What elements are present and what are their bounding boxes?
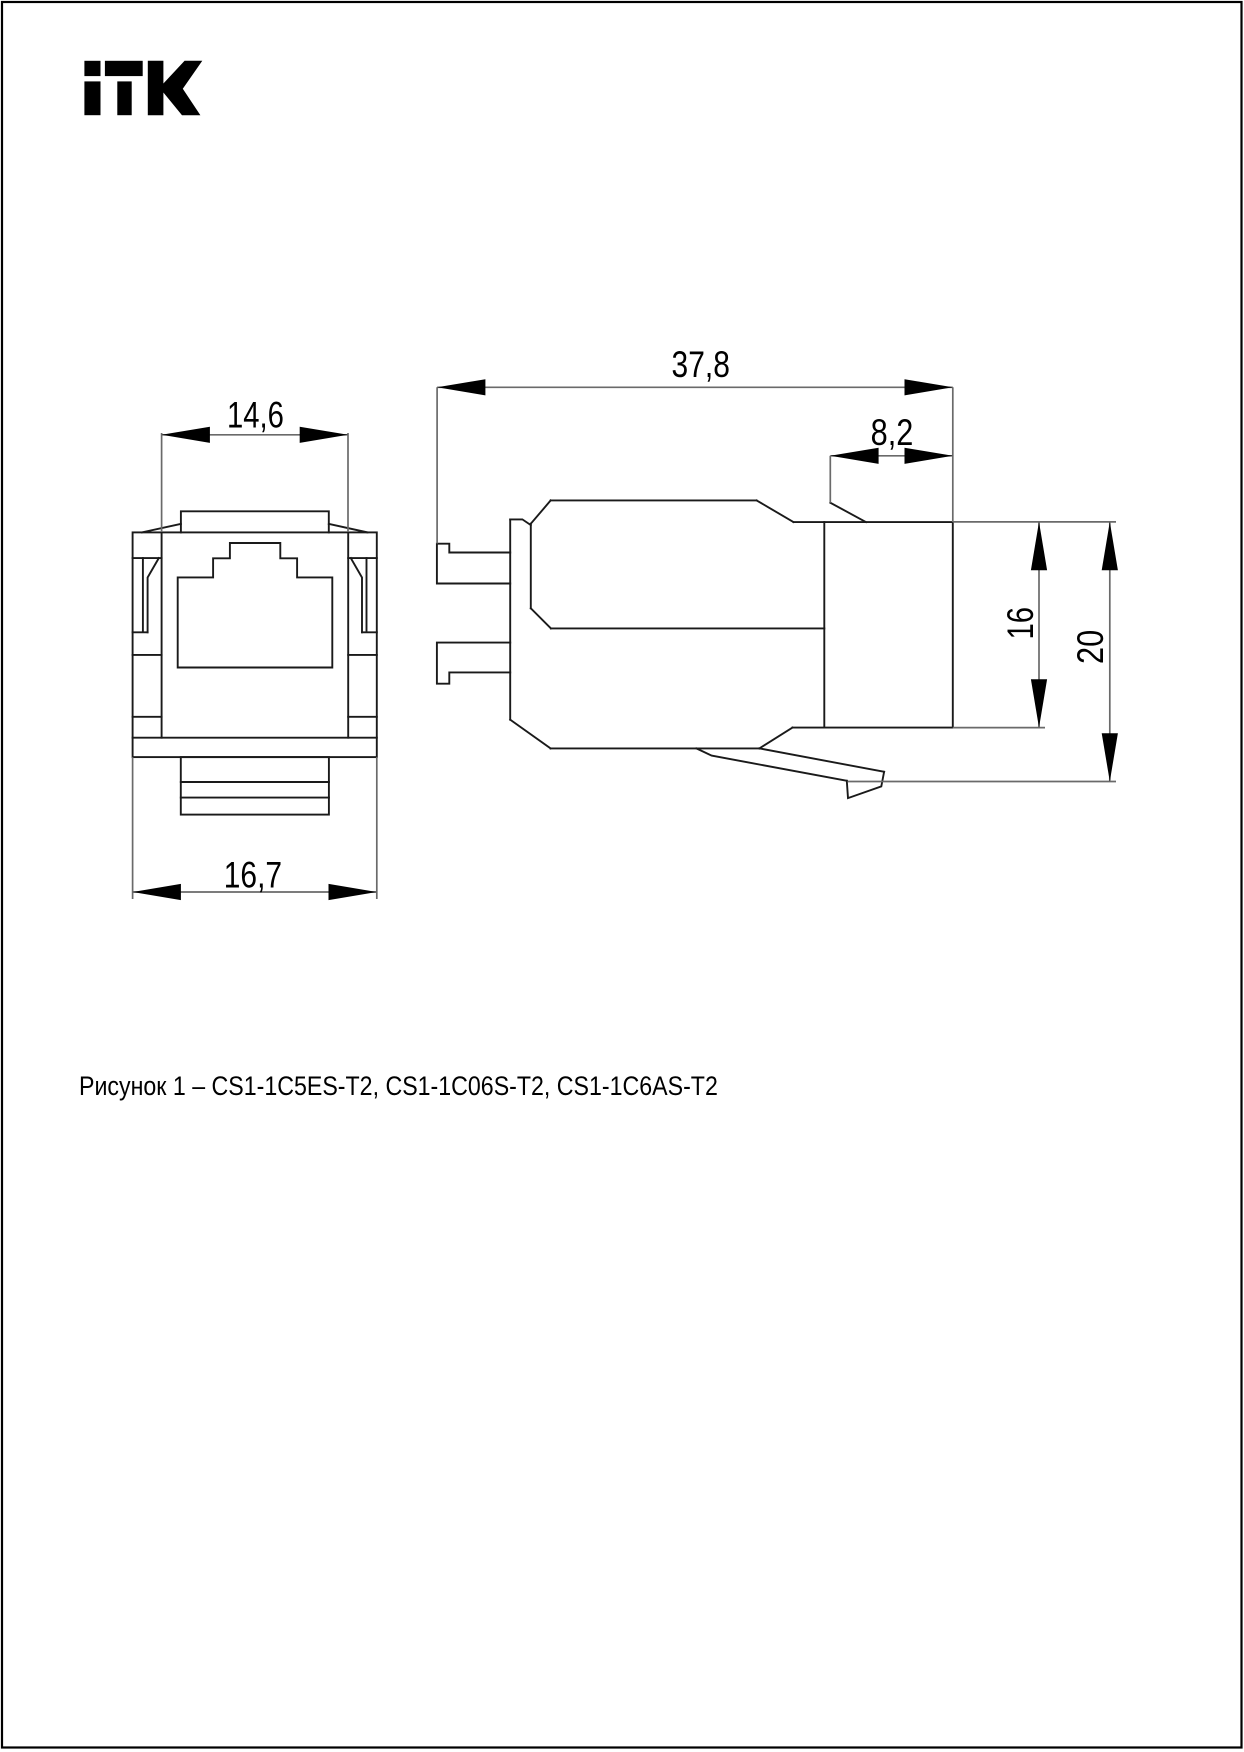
svg-text:14,6: 14,6 [227,395,284,436]
svg-text:37,8: 37,8 [672,345,730,386]
svg-text:8,2: 8,2 [871,413,914,454]
svg-text:20: 20 [1070,630,1111,664]
svg-text:16,7: 16,7 [224,855,282,896]
svg-text:Рисунок 1 – CS1-1C5ES-T2, CS1-: Рисунок 1 – CS1-1C5ES-T2, CS1-1C06S-T2, … [79,1072,718,1102]
svg-text:16: 16 [1001,607,1042,640]
